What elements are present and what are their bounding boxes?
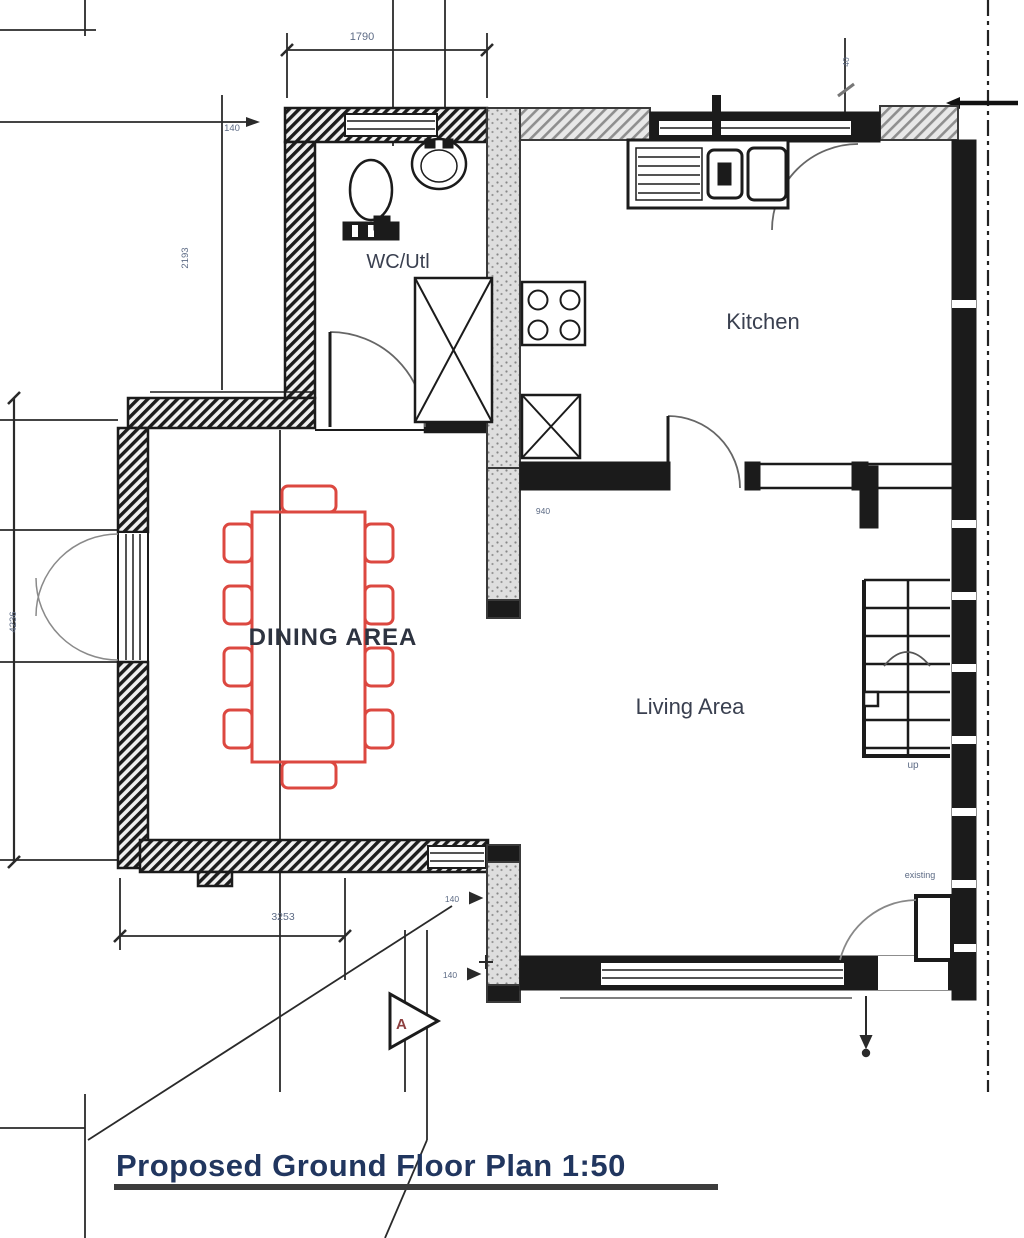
sink-bowl-2	[748, 148, 786, 200]
dim-arrow-top-left	[246, 117, 260, 127]
rooflight-box	[415, 278, 492, 422]
section-marker-letter: A	[396, 1016, 407, 1033]
staircase	[864, 580, 950, 758]
dim-140-mid: 140	[445, 894, 459, 904]
chair	[224, 524, 252, 562]
stair-up-label: up	[907, 760, 919, 771]
kitchen-fixtures	[522, 140, 788, 458]
room-label-dining: DINING AREA	[249, 624, 418, 651]
dim-bottom-width: 3253	[271, 911, 295, 923]
chair	[365, 648, 393, 686]
dim-left-lower: 4236	[8, 611, 19, 632]
chair	[224, 648, 252, 686]
sink-tap	[718, 163, 731, 185]
room-label-living: Living Area	[636, 694, 746, 719]
door-note-existing: existing	[905, 870, 936, 880]
draining-board	[636, 148, 702, 200]
drawing-title-underline	[114, 1184, 718, 1190]
chair	[365, 586, 393, 624]
dim-left-upper: 2193	[180, 247, 191, 268]
drawing-title: Proposed Ground Floor Plan 1:50	[116, 1148, 626, 1183]
dim-140-low: 140	[443, 970, 457, 980]
chair	[224, 586, 252, 624]
room-label-kitchen: Kitchen	[726, 309, 799, 334]
floor-plan-drawing: A WC/Utl Kitchen DINING AREA Living Area…	[0, 0, 1024, 1238]
chair	[365, 524, 393, 562]
dim-40: 40	[841, 57, 851, 67]
floor-plan-svg: A WC/Utl Kitchen DINING AREA Living Area…	[0, 0, 1024, 1238]
dim-opening: 940	[536, 506, 550, 516]
chair	[365, 710, 393, 748]
dim-140-top: 140	[224, 123, 240, 134]
chair	[282, 486, 336, 512]
section-marker: A	[390, 994, 438, 1048]
new-walls	[118, 108, 488, 886]
toilet-bowl	[350, 160, 392, 220]
dim-top-width: 1790	[350, 31, 374, 43]
wc-fixtures	[343, 139, 466, 240]
chair	[282, 762, 336, 788]
solid-walls	[520, 112, 976, 1000]
room-label-wc: WC/Utl	[366, 251, 429, 273]
existing-walls	[487, 106, 958, 1002]
chair	[224, 710, 252, 748]
